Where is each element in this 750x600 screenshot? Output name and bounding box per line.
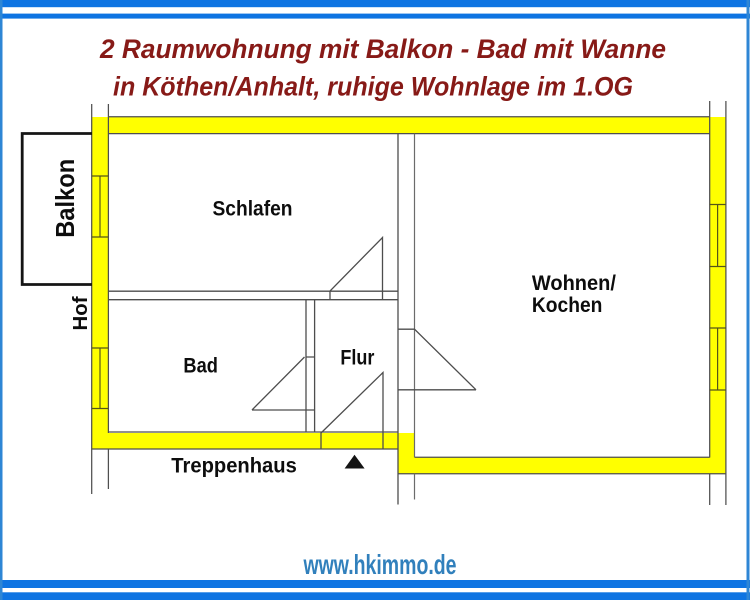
svg-text:Wohnen/: Wohnen/ (532, 272, 616, 295)
svg-text:www.hkimmo.de: www.hkimmo.de (303, 549, 457, 580)
svg-text:Treppenhaus: Treppenhaus (171, 454, 296, 477)
svg-text:Flur: Flur (340, 347, 374, 370)
svg-text:Bad: Bad (183, 354, 218, 377)
svg-text:Kochen: Kochen (532, 294, 603, 317)
svg-text:Balkon: Balkon (50, 159, 80, 238)
svg-text:2 Raumwohnung mit Balkon - Bad: 2 Raumwohnung mit Balkon - Bad mit Wanne (99, 34, 666, 64)
svg-text:in Köthen/Anhalt, ruhige Wohnl: in Köthen/Anhalt, ruhige Wohnlage im 1.O… (113, 72, 633, 102)
svg-text:Schlafen: Schlafen (213, 197, 293, 220)
svg-text:Hof: Hof (69, 296, 92, 330)
